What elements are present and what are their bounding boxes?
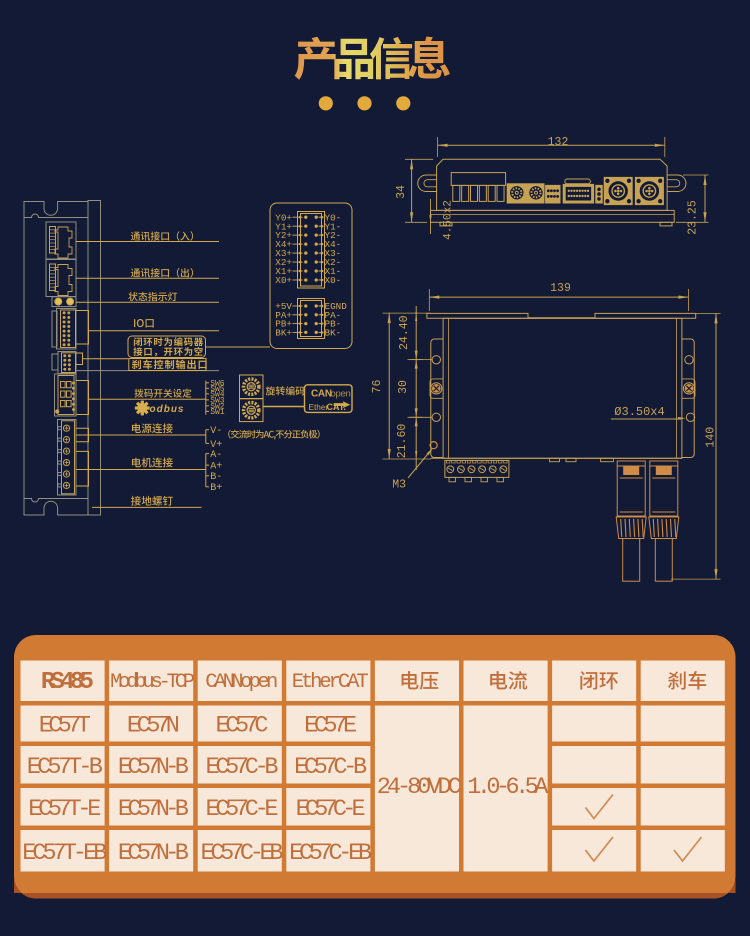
svg-text:Modbus-TCP: Modbus-TCP (110, 671, 195, 694)
svg-text:EC57C-E: EC57C-E (206, 796, 279, 823)
svg-text:B+: B+ (210, 483, 222, 494)
svg-text:RS485: RS485 (41, 669, 94, 696)
svg-text:132: 132 (548, 136, 569, 149)
svg-text:140: 140 (705, 427, 718, 448)
svg-text:A+: A+ (210, 462, 222, 473)
svg-text:30: 30 (397, 380, 410, 394)
svg-text:EtherCAT: EtherCAT (292, 671, 369, 694)
svg-text:CAN: CAN (311, 389, 332, 400)
svg-text:EC57N-B: EC57N-B (118, 796, 189, 823)
svg-text:X0-: X0- (325, 275, 342, 286)
svg-text:EC57N-B: EC57N-B (118, 754, 189, 781)
svg-text:EC57C-EB: EC57C-EB (201, 840, 284, 867)
svg-text:24.40: 24.40 (398, 315, 411, 350)
svg-text:EC57C-B: EC57C-B (294, 754, 367, 781)
svg-text:76: 76 (371, 380, 384, 394)
svg-text:B-: B- (210, 472, 222, 483)
svg-text:open: open (331, 389, 351, 400)
svg-text:1.0-6.5A: 1.0-6.5A (467, 774, 549, 801)
svg-text:EC57T-B: EC57T-B (27, 754, 103, 781)
svg-text:23.25: 23.25 (686, 200, 699, 235)
svg-text:EC57C: EC57C (216, 713, 269, 740)
svg-text:Ø3.50x4: Ø3.50x4 (614, 405, 664, 419)
svg-text:A-: A- (210, 450, 222, 461)
svg-text:34: 34 (395, 185, 408, 199)
svg-text:EC57C-E: EC57C-E (296, 796, 366, 823)
svg-text:CANNopen: CANNopen (205, 671, 278, 694)
svg-text:BK-: BK- (325, 328, 342, 339)
svg-text:odbus: odbus (150, 404, 185, 415)
svg-text:21.60: 21.60 (396, 424, 409, 459)
svg-text:EC57C-B: EC57C-B (206, 754, 279, 781)
svg-text:EC57T: EC57T (39, 713, 91, 740)
svg-text:X0+: X0+ (275, 275, 292, 286)
svg-text:EC57E: EC57E (304, 713, 357, 740)
svg-text:M3: M3 (392, 478, 406, 491)
svg-text:EC57N-B: EC57N-B (118, 840, 189, 867)
svg-text:EC57T-EB: EC57T-EB (22, 840, 107, 867)
svg-text:EC57T-E: EC57T-E (28, 796, 101, 823)
svg-text:Ether: Ether (309, 403, 329, 412)
svg-text:V-: V- (210, 426, 222, 437)
svg-text:BK+: BK+ (275, 328, 292, 339)
svg-text:EC57N: EC57N (127, 713, 180, 740)
svg-text:24-80VDC: 24-80VDC (377, 774, 462, 801)
svg-text:SW1: SW1 (210, 408, 225, 417)
svg-text:EC57C-EB: EC57C-EB (289, 840, 372, 867)
svg-text:4.50x2: 4.50x2 (443, 200, 455, 240)
svg-text:139: 139 (550, 282, 571, 295)
